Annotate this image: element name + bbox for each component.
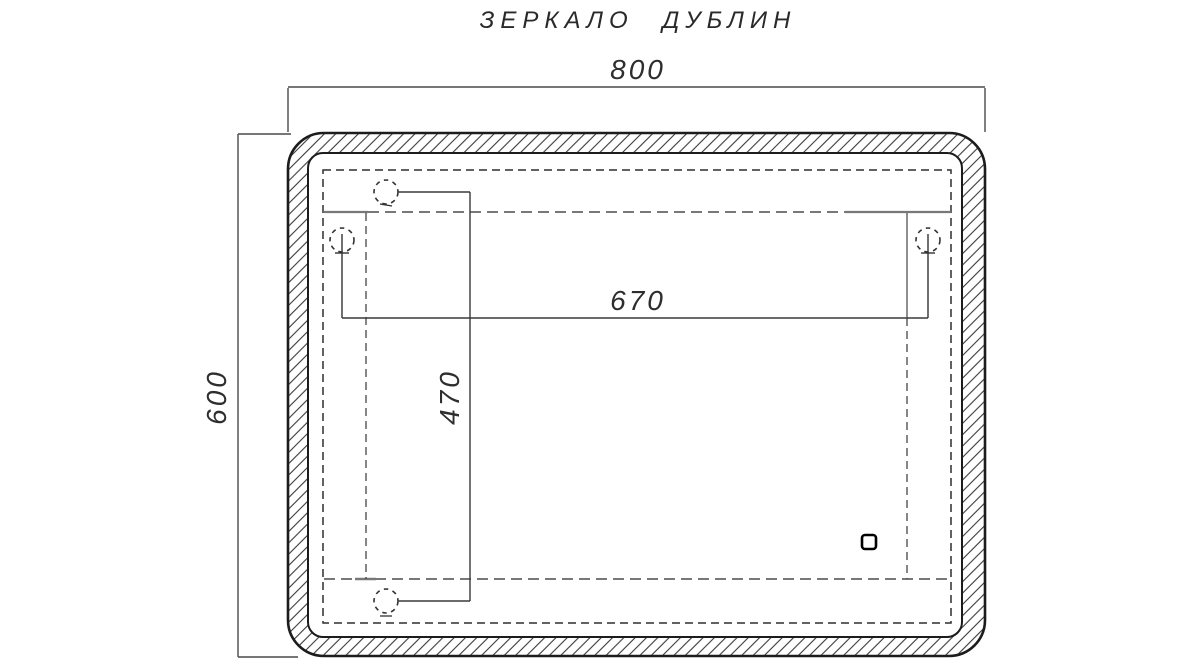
drawing-sheet: ЗЕРКАЛО ДУБЛИН 800 600: [0, 0, 1200, 668]
dimension-label-800: 800: [610, 54, 666, 85]
drawing-title: ЗЕРКАЛО ДУБЛИН: [480, 7, 797, 34]
mirror-technical-drawing: ЗЕРКАЛО ДУБЛИН 800 600: [0, 0, 1200, 668]
touch-sensor-icon: [862, 535, 876, 549]
dimension-label-470: 470: [434, 369, 465, 425]
mirror-inner-edge: [308, 153, 962, 637]
dimension-label-600: 600: [201, 369, 232, 425]
dimension-label-670: 670: [610, 285, 666, 316]
